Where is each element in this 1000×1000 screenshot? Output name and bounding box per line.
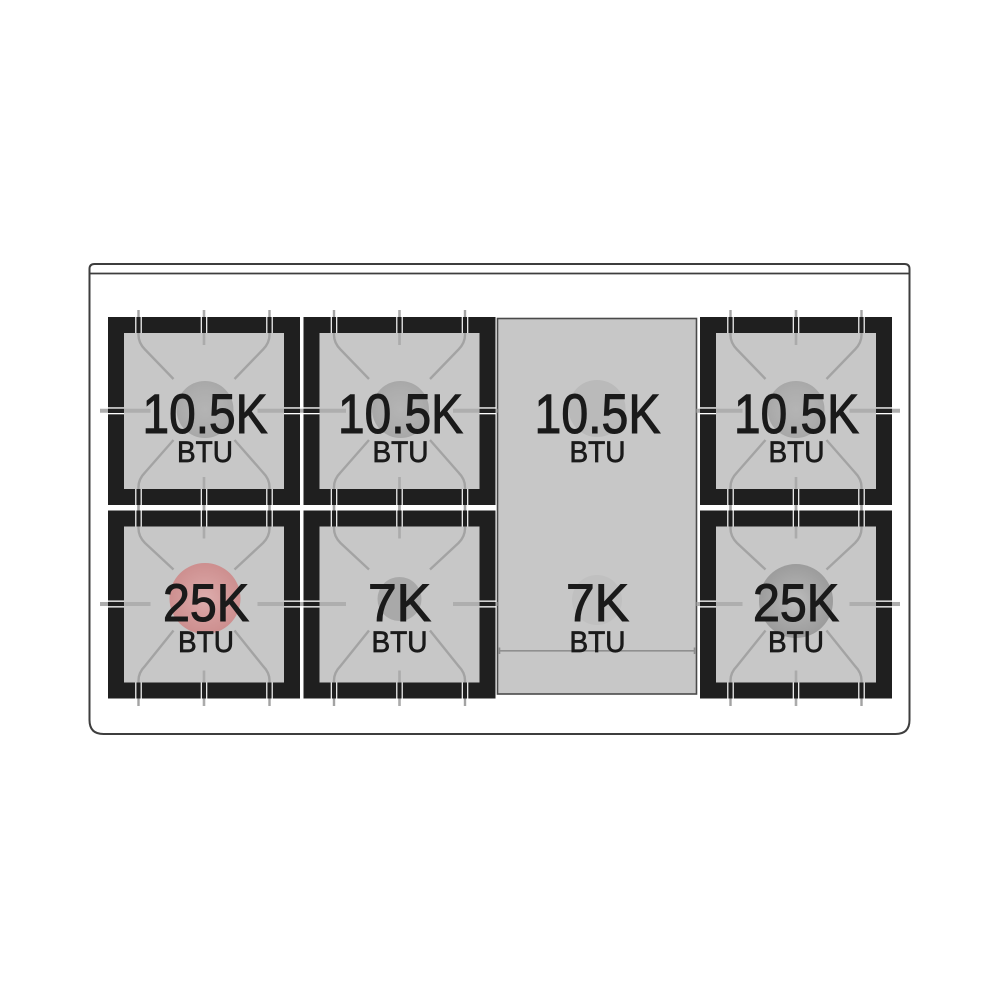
svg-text:BTU: BTU: [373, 436, 429, 469]
svg-text:BTU: BTU: [178, 626, 234, 659]
svg-text:7K: 7K: [368, 574, 431, 633]
svg-text:BTU: BTU: [372, 626, 428, 659]
svg-text:BTU: BTU: [177, 436, 233, 469]
svg-text:BTU: BTU: [769, 436, 825, 469]
svg-text:25K: 25K: [163, 574, 249, 633]
svg-text:7K: 7K: [566, 574, 629, 633]
svg-text:25K: 25K: [753, 574, 839, 633]
svg-text:BTU: BTU: [570, 436, 626, 469]
svg-text:BTU: BTU: [768, 626, 824, 659]
svg-text:BTU: BTU: [570, 626, 626, 659]
